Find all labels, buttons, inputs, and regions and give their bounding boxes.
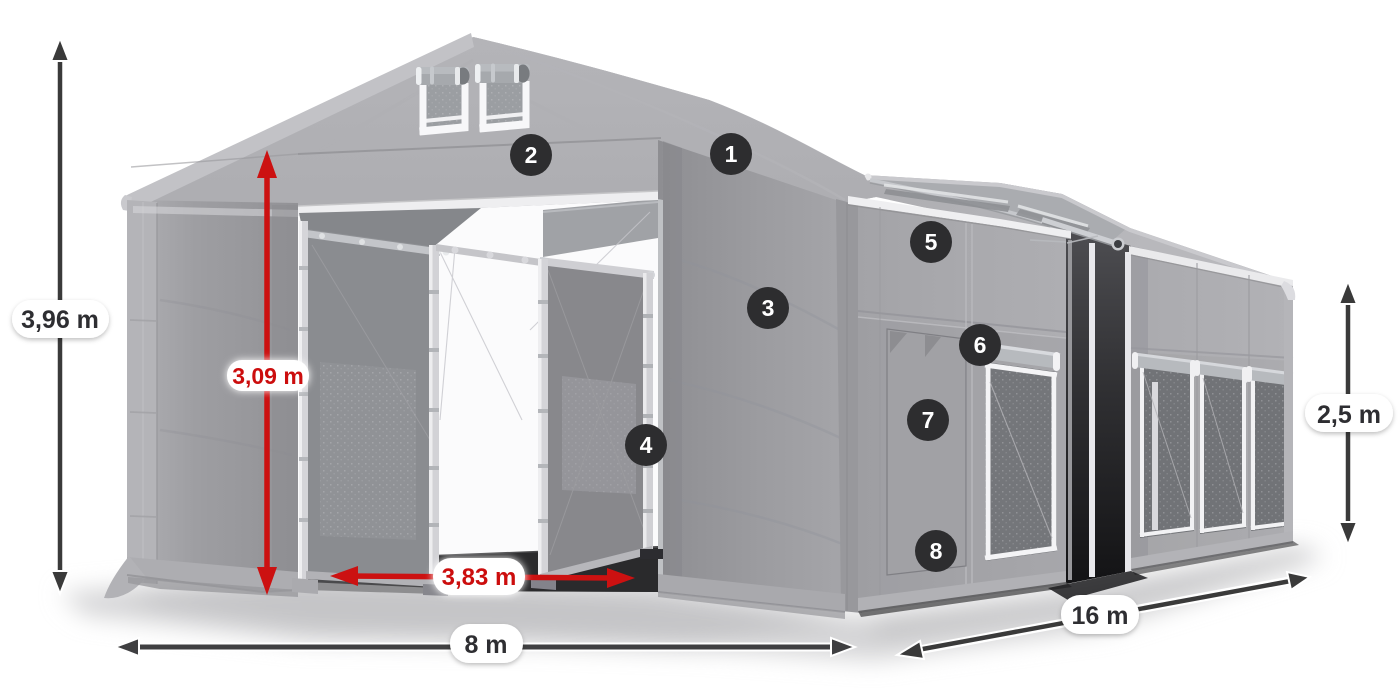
- svg-text:5: 5: [925, 229, 938, 255]
- svg-text:16 m: 16 m: [1072, 602, 1129, 630]
- svg-text:4: 4: [640, 432, 653, 458]
- svg-text:8 m: 8 m: [464, 631, 507, 659]
- svg-text:3,96 m: 3,96 m: [21, 306, 99, 334]
- svg-text:2,5 m: 2,5 m: [1317, 401, 1381, 429]
- svg-text:6: 6: [974, 332, 987, 358]
- svg-text:7: 7: [922, 407, 935, 433]
- svg-text:3,09 m: 3,09 m: [232, 363, 304, 389]
- svg-text:2: 2: [525, 142, 538, 168]
- svg-text:1: 1: [725, 141, 738, 167]
- svg-text:8: 8: [930, 538, 943, 564]
- svg-text:3,83 m: 3,83 m: [442, 564, 517, 591]
- svg-text:3: 3: [762, 295, 775, 321]
